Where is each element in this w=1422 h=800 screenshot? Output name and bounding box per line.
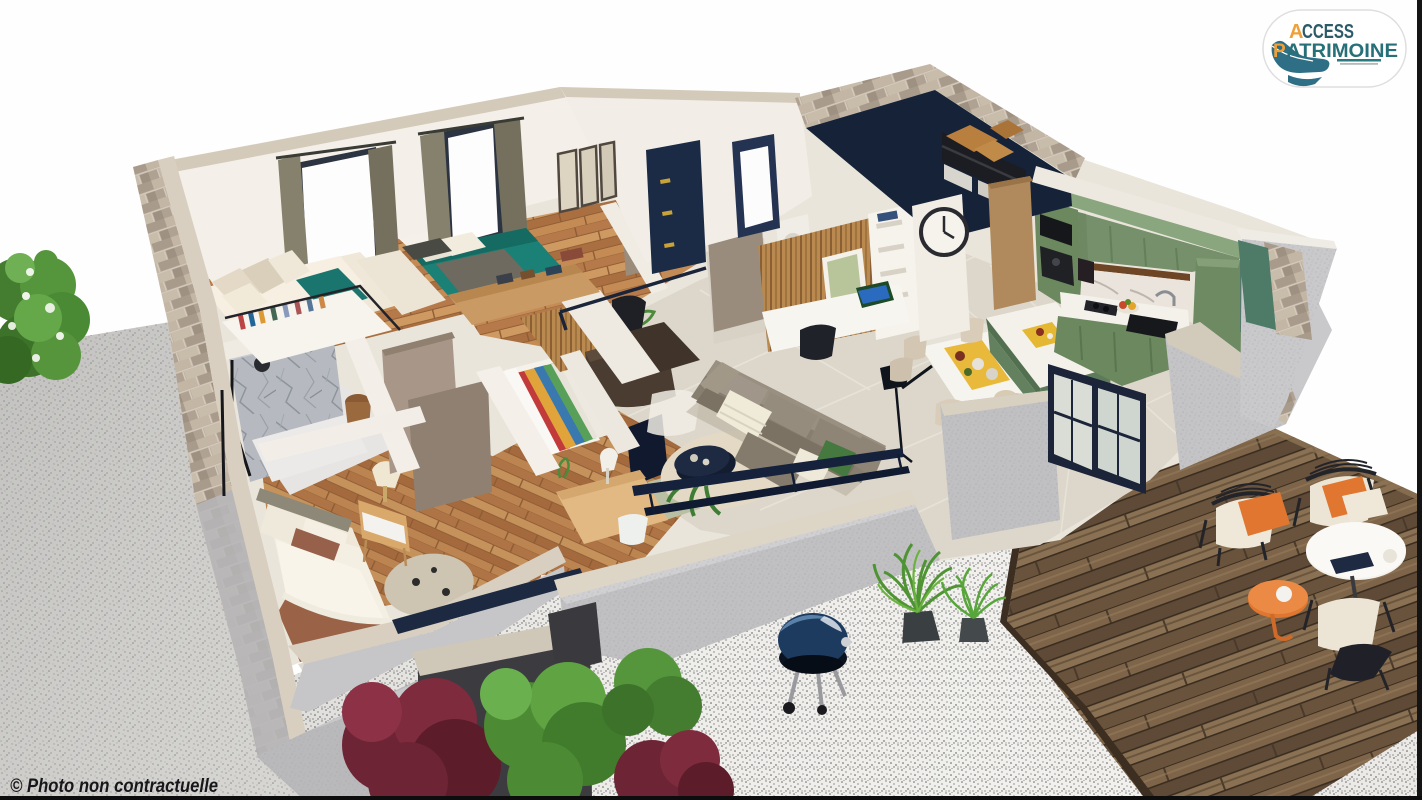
svg-text:© Photo non contractuelle: © Photo non contractuelle (10, 775, 218, 797)
svg-text:P: P (1273, 41, 1286, 62)
svg-text:ATRIMOINE: ATRIMOINE (1286, 41, 1398, 62)
svg-text:CCESS: CCESS (1302, 21, 1354, 43)
